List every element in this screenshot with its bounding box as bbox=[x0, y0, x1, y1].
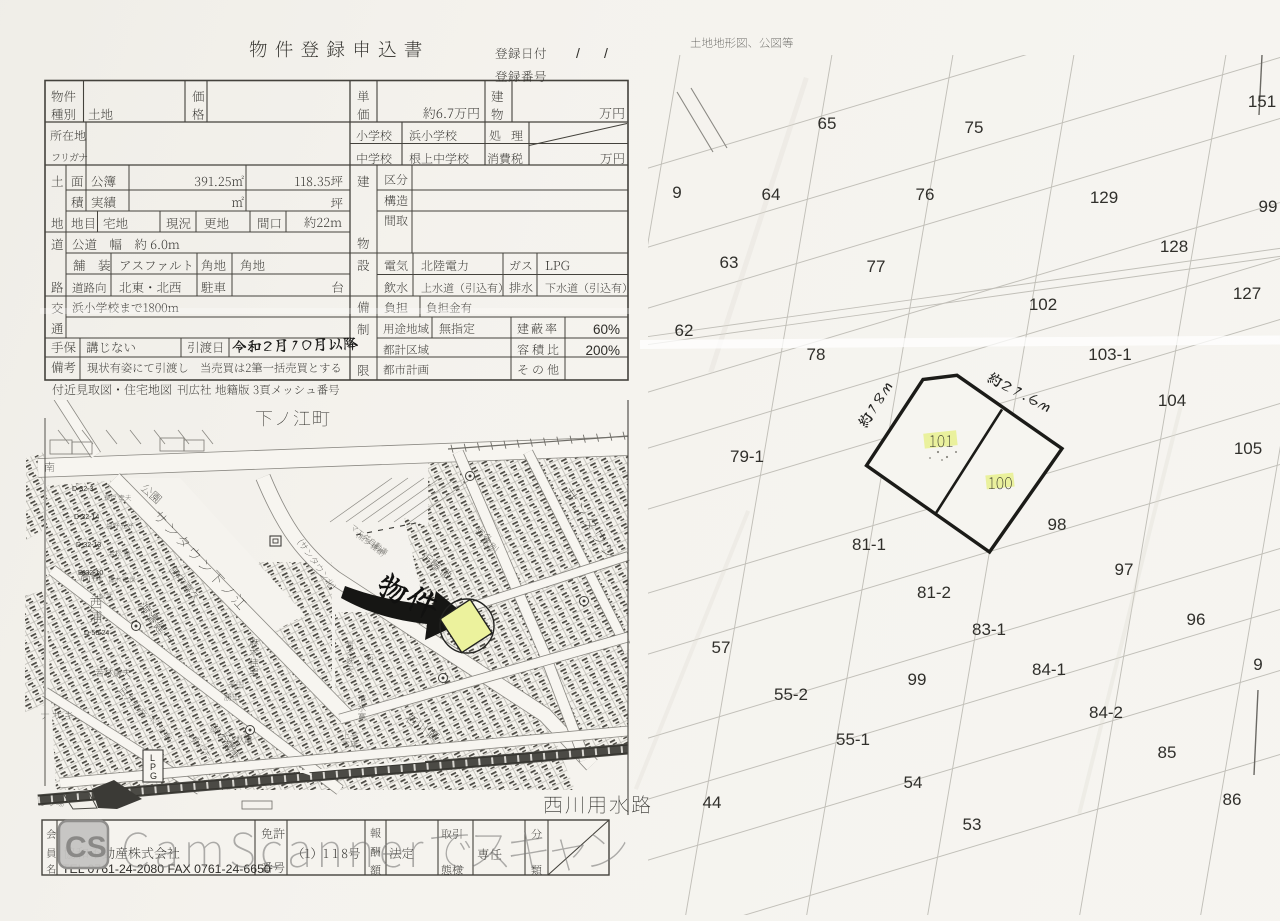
svg-text:55-1: 55-1 bbox=[836, 730, 870, 749]
svg-text:54: 54 bbox=[904, 773, 923, 792]
svg-text:128: 128 bbox=[1160, 237, 1188, 256]
svg-text:CS: CS bbox=[65, 831, 107, 864]
svg-text:63: 63 bbox=[720, 253, 739, 272]
svg-text:75: 75 bbox=[965, 118, 984, 137]
svg-text:84-1: 84-1 bbox=[1032, 660, 1066, 679]
svg-text:9: 9 bbox=[1253, 655, 1262, 674]
svg-text:57: 57 bbox=[712, 638, 731, 657]
svg-text:104: 104 bbox=[1158, 391, 1186, 410]
svg-text:85: 85 bbox=[1158, 743, 1177, 762]
svg-text:81-2: 81-2 bbox=[917, 583, 951, 602]
svg-text:84-2: 84-2 bbox=[1089, 703, 1123, 722]
svg-text:79-1: 79-1 bbox=[730, 447, 764, 466]
svg-text:53: 53 bbox=[963, 815, 982, 834]
svg-text:77: 77 bbox=[867, 257, 886, 276]
svg-text:G: G bbox=[150, 771, 157, 781]
svg-text:55-2: 55-2 bbox=[774, 685, 808, 704]
svg-text:151: 151 bbox=[1248, 92, 1276, 111]
svg-text:D-56-24: D-56-24 bbox=[84, 630, 109, 637]
svg-text:44: 44 bbox=[703, 793, 722, 812]
svg-text:83-1: 83-1 bbox=[972, 620, 1006, 639]
svg-text:97: 97 bbox=[1115, 560, 1134, 579]
svg-text:9: 9 bbox=[672, 183, 681, 202]
svg-text:103-1: 103-1 bbox=[1088, 345, 1131, 364]
svg-text:105: 105 bbox=[1234, 439, 1262, 458]
svg-text:65: 65 bbox=[818, 114, 837, 133]
svg-text:96: 96 bbox=[1187, 610, 1206, 629]
svg-text:D-32-10: D-32-10 bbox=[78, 570, 103, 577]
svg-text:98: 98 bbox=[1048, 515, 1067, 534]
svg-text:/: / bbox=[576, 45, 580, 61]
svg-text:200%: 200% bbox=[585, 343, 620, 358]
svg-text:62: 62 bbox=[675, 321, 694, 340]
svg-text:60%: 60% bbox=[593, 322, 620, 337]
svg-text:99: 99 bbox=[908, 670, 927, 689]
svg-text:D-32-13: D-32-13 bbox=[76, 542, 101, 549]
svg-text:86: 86 bbox=[1223, 790, 1242, 809]
svg-text:78: 78 bbox=[807, 345, 826, 364]
svg-text:127: 127 bbox=[1233, 284, 1261, 303]
svg-text:81-1: 81-1 bbox=[852, 535, 886, 554]
svg-text:99: 99 bbox=[1259, 197, 1278, 216]
svg-text:/: / bbox=[604, 45, 608, 61]
svg-text:D-32-3: D-32-3 bbox=[72, 486, 94, 493]
svg-text:129: 129 bbox=[1090, 188, 1118, 207]
svg-text:64: 64 bbox=[762, 185, 781, 204]
svg-text:76: 76 bbox=[916, 185, 935, 204]
svg-text:102: 102 bbox=[1029, 295, 1057, 314]
svg-text:D-32-14: D-32-14 bbox=[74, 514, 99, 521]
